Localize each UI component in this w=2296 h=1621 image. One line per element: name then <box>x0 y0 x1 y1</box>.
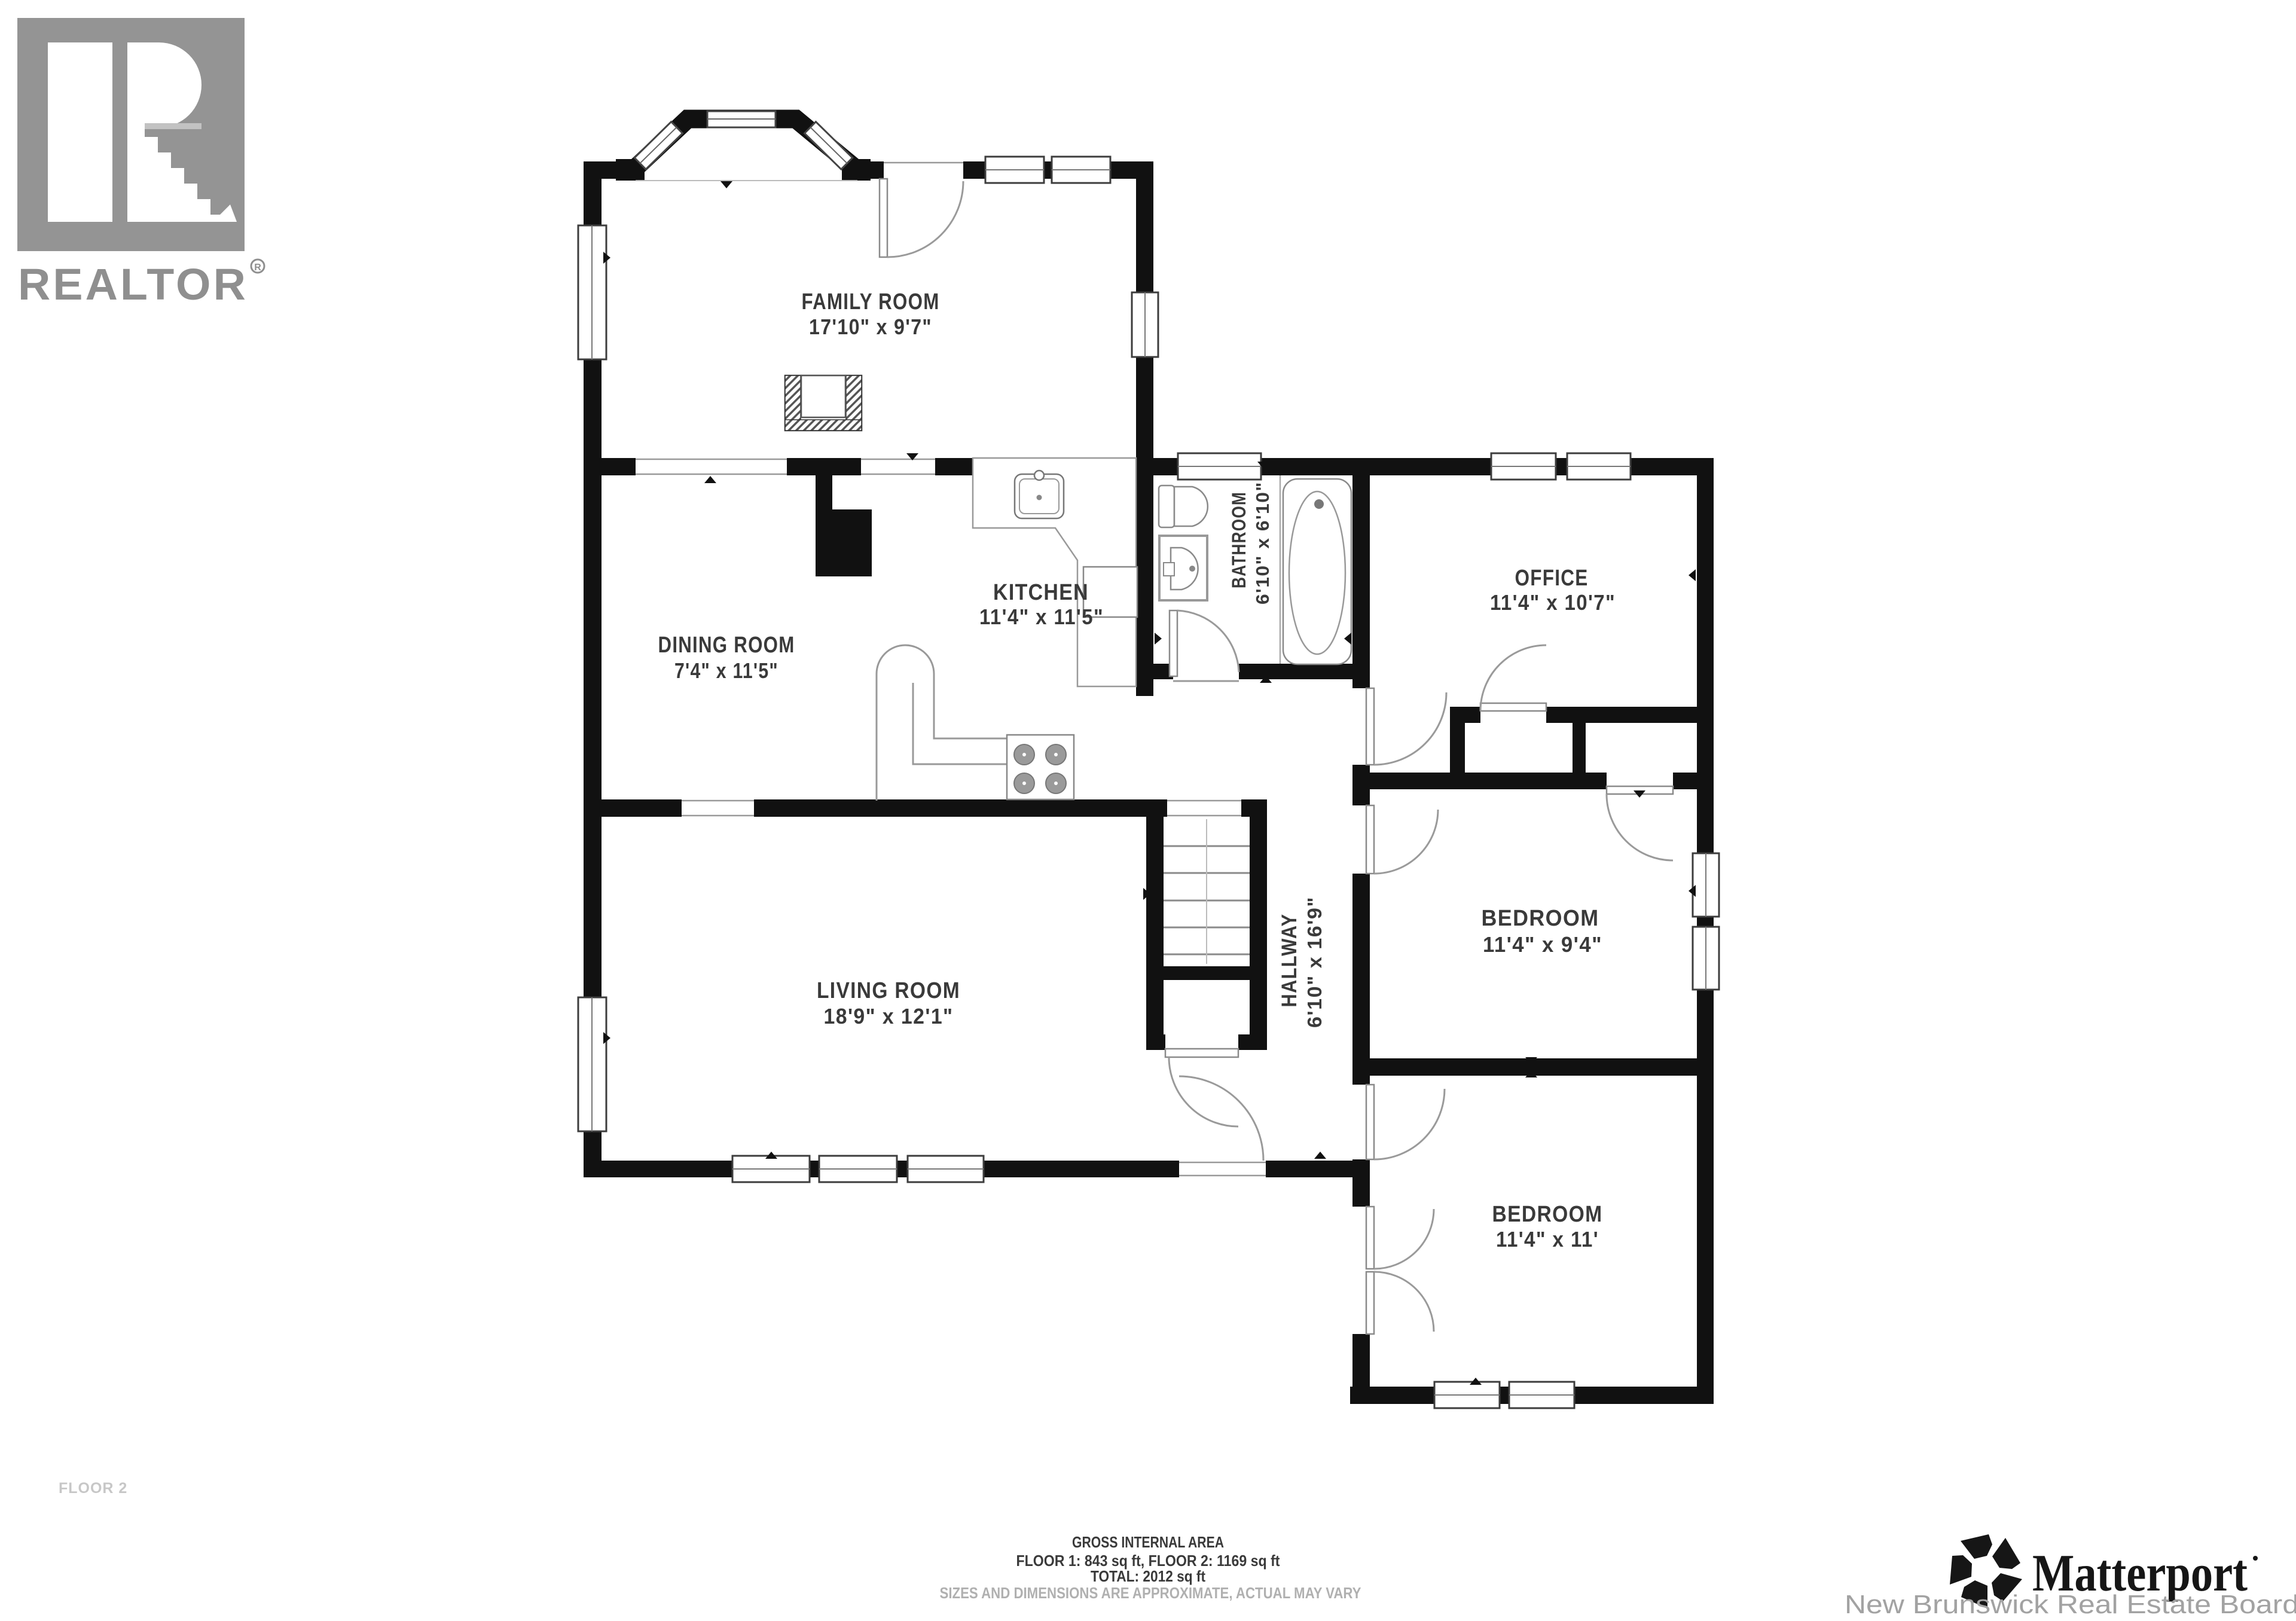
svg-text:6'10" x 16'9": 6'10" x 16'9" <box>1303 896 1326 1028</box>
svg-text:11'4" x 11'5": 11'4" x 11'5" <box>979 605 1104 629</box>
svg-text:11'4" x 9'4": 11'4" x 9'4" <box>1483 932 1602 957</box>
svg-text:OFFICE: OFFICE <box>1515 566 1589 591</box>
svg-text:GROSS INTERNAL AREA: GROSS INTERNAL AREA <box>1072 1533 1224 1551</box>
svg-text:BEDROOM: BEDROOM <box>1492 1202 1603 1227</box>
svg-text:New Brunswick Real Estate Boar: New Brunswick Real Estate Board <box>1845 1590 2296 1619</box>
svg-text:SIZES AND DIMENSIONS ARE APPRO: SIZES AND DIMENSIONS ARE APPROXIMATE, AC… <box>940 1584 1361 1602</box>
svg-text:TOTAL: 2012 sq ft: TOTAL: 2012 sq ft <box>1091 1567 1205 1585</box>
svg-text:R: R <box>254 262 261 273</box>
svg-text:DINING ROOM: DINING ROOM <box>658 633 795 658</box>
svg-text:LIVING ROOM: LIVING ROOM <box>817 978 960 1003</box>
svg-text:17'10" x 9'7": 17'10" x 9'7" <box>809 315 932 339</box>
svg-text:6'10" x 6'10": 6'10" x 6'10" <box>1252 481 1273 605</box>
svg-text:11'4" x 10'7": 11'4" x 10'7" <box>1490 590 1616 615</box>
svg-text:7'4" x 11'5": 7'4" x 11'5" <box>674 658 778 683</box>
svg-text:KITCHEN: KITCHEN <box>993 580 1089 605</box>
svg-text:HALLWAY: HALLWAY <box>1278 914 1301 1008</box>
svg-text:18'9" x 12'1": 18'9" x 12'1" <box>824 1004 954 1028</box>
svg-text:11'4" x 11': 11'4" x 11' <box>1496 1227 1599 1251</box>
svg-text:FAMILY ROOM: FAMILY ROOM <box>802 289 940 315</box>
svg-text:BATHROOM: BATHROOM <box>1228 492 1250 588</box>
svg-text:FLOOR 2: FLOOR 2 <box>59 1480 127 1497</box>
svg-text:REALTOR: REALTOR <box>18 260 248 309</box>
svg-text:BEDROOM: BEDROOM <box>1482 906 1599 931</box>
